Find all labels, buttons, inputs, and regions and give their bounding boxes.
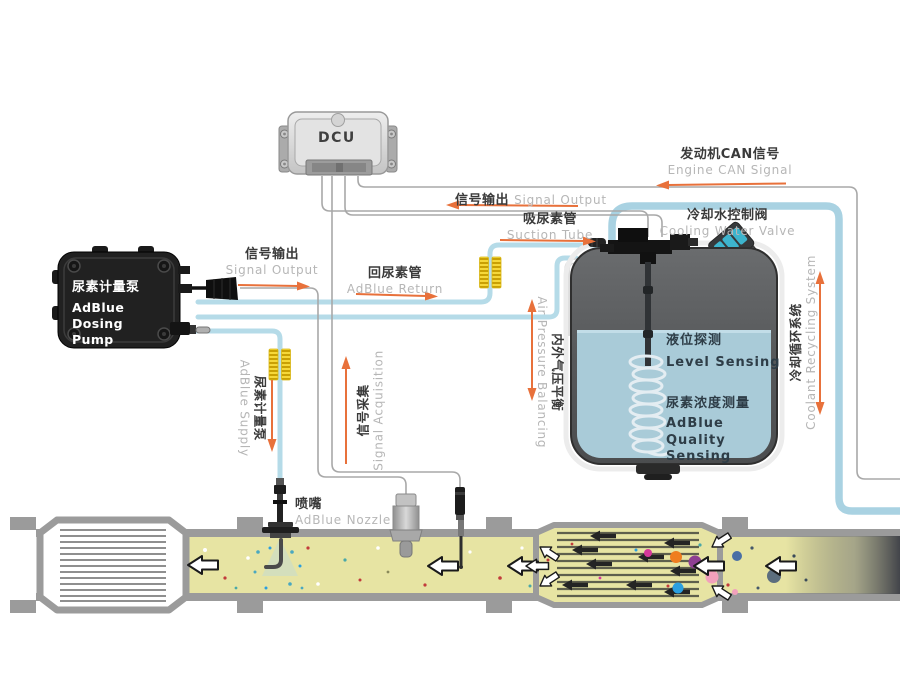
signal-output-top-label: 信号输出 Signal Output bbox=[455, 189, 635, 209]
exhaust-inlet-gradient bbox=[786, 536, 900, 594]
pump-name-zh: 尿素计量泵 bbox=[72, 280, 176, 296]
suction-tube-label: 吸尿素管 Suction Tube bbox=[495, 212, 605, 243]
pump-name: 尿素计量泵 AdBlue Dosing Pump bbox=[72, 280, 176, 347]
adblue-supply-label: 尿素计量泵 AdBlue Supply bbox=[237, 348, 268, 468]
cooling-water-valve-label: 冷却水控制阀 Cooling Water Valve bbox=[645, 208, 810, 239]
dcu-label: DCU bbox=[318, 130, 356, 148]
signal-output-pump-label: 信号输出 Signal Output bbox=[222, 247, 322, 278]
adblue-nozzle-label: 喷嘴 AdBlue Nozzle bbox=[295, 497, 391, 528]
exhaust-line bbox=[10, 517, 900, 613]
level-sensing-label: 液位探测 Level Sensing bbox=[666, 333, 786, 372]
coolant-recycling-label: 冷却循环系统 Coolant Recycling System bbox=[788, 255, 819, 430]
scr-system-diagram: DCU 尿素计量泵 AdBlue Dosing Pump 发动机CAN信号 En… bbox=[0, 0, 900, 680]
pump-name-en2: Pump bbox=[72, 332, 176, 348]
adblue-return-label: 回尿素管 AdBlue Return bbox=[345, 266, 445, 297]
air-pressure-balancing-label: 内外气压平衡 Air Pressure Balancing bbox=[534, 290, 565, 455]
pump-outlet-port bbox=[170, 322, 210, 335]
engine-can-label: 发动机CAN信号 Engine CAN Signal bbox=[655, 147, 805, 178]
pump-connector bbox=[178, 277, 238, 300]
signal-acquisition-label: 信号采集 Signal Acquisition bbox=[356, 345, 387, 475]
temp-sensor-wire bbox=[332, 176, 460, 489]
pump-name-en1: AdBlue Dosing bbox=[72, 300, 176, 331]
adblue-quality-label: 尿素浓度测量 AdBlue Quality Sensing bbox=[666, 396, 786, 465]
doc-catalyst bbox=[40, 520, 186, 610]
